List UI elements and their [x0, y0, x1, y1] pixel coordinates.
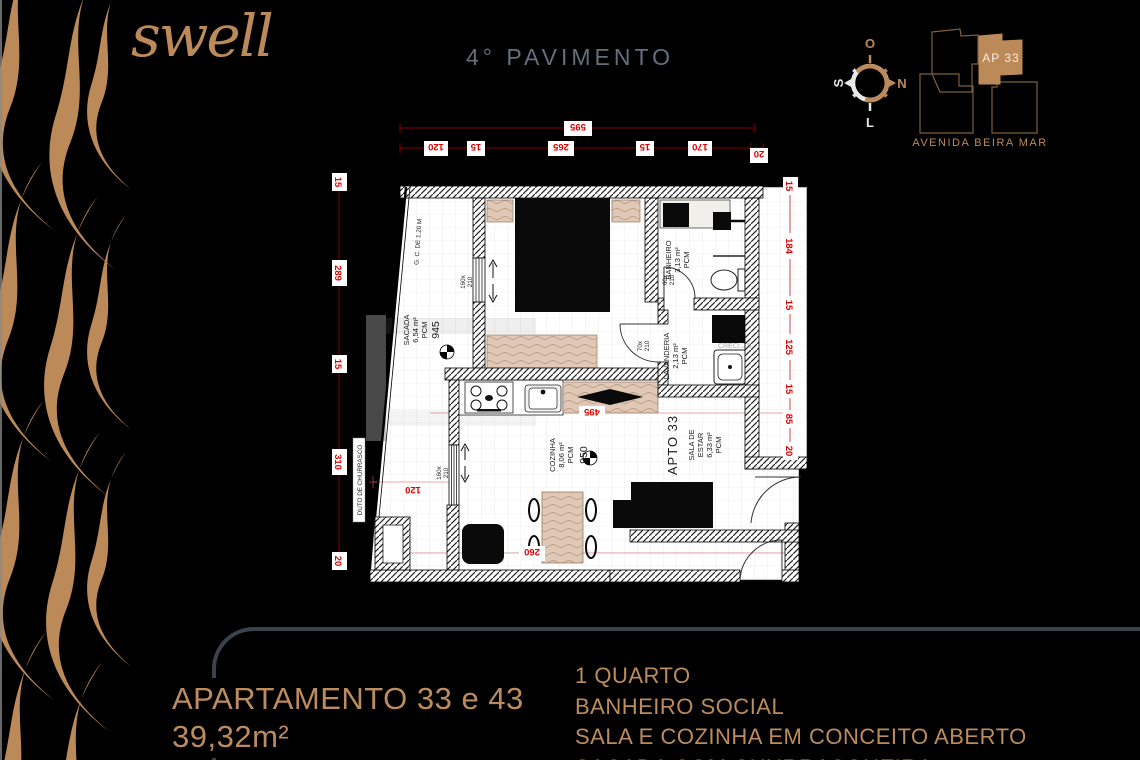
apartment-area: 39,32m²	[172, 718, 524, 756]
dim-label: 15	[636, 141, 654, 156]
svg-text:15: 15	[470, 141, 481, 152]
dim-label: 125	[783, 334, 798, 360]
svg-text:120: 120	[405, 484, 421, 495]
dim-label: 170	[688, 141, 712, 156]
dim-label: 20	[783, 442, 798, 460]
compass-east-label: L	[866, 115, 874, 130]
feature-item: 1 QUARTO	[575, 661, 1027, 692]
svg-text:2,13 m²: 2,13 m²	[671, 343, 680, 369]
left-edge-line	[0, 0, 2, 760]
svg-text:289: 289	[332, 265, 343, 281]
svg-text:DUTO DE CHURRASCO: DUTO DE CHURRASCO	[357, 445, 364, 516]
compass-rose-icon: O N S L	[833, 30, 907, 130]
svg-text:85: 85	[783, 414, 794, 425]
dim-label: 120	[401, 484, 425, 499]
dim-label: 260	[519, 546, 545, 561]
opening-label: 160x	[436, 465, 443, 480]
room-cozinha: COZINHA	[548, 438, 557, 472]
room-banheiro: BANHEIRO	[664, 240, 673, 279]
wardrobe	[487, 335, 597, 368]
compass-south-label: S	[833, 78, 846, 87]
compass-west-label: O	[865, 36, 875, 51]
unit-number-label: APTO 33	[665, 415, 680, 475]
dim-label: 15	[467, 141, 485, 156]
dim-label: 15	[783, 296, 798, 314]
bedroom-window	[473, 258, 485, 302]
nightstand-right	[612, 200, 640, 222]
svg-text:15: 15	[783, 384, 794, 395]
opening-label: 60x	[662, 274, 669, 285]
duct-shaft	[383, 525, 403, 563]
svg-text:210: 210	[644, 340, 651, 351]
dim-label: 120	[424, 141, 448, 156]
svg-text:6,33 m²: 6,33 m²	[705, 432, 714, 458]
svg-text:170: 170	[692, 141, 708, 152]
svg-text:210: 210	[467, 276, 474, 287]
dim-label: 20	[750, 148, 768, 163]
stove-icon	[465, 382, 513, 413]
svg-text:PCM: PCM	[714, 437, 723, 454]
dim-label: 85	[783, 410, 798, 428]
nightstand-left	[487, 200, 513, 222]
room-lavanderia: LAVANDERIA	[662, 333, 671, 379]
svg-text:184: 184	[783, 238, 794, 255]
svg-text:3,13 m²: 3,13 m²	[673, 247, 682, 273]
dim-label: 495	[579, 406, 605, 421]
svg-text:20: 20	[754, 148, 765, 159]
svg-text:15: 15	[332, 177, 343, 188]
poster: swell 4° PAVIMENTO O N S L AP 33 AVENIDA…	[0, 0, 1140, 760]
dim-label: 289	[332, 260, 347, 286]
svg-text:ESTAR: ESTAR	[696, 432, 705, 457]
svg-text:15: 15	[332, 359, 343, 370]
svg-text:15: 15	[639, 141, 650, 152]
svg-text:8,06 m²: 8,06 m²	[557, 442, 566, 468]
sink-icon	[525, 385, 561, 412]
svg-text:15: 15	[783, 181, 794, 192]
svg-text:125: 125	[783, 339, 794, 356]
svg-text:210: 210	[443, 467, 450, 478]
dim-label: 595	[564, 121, 592, 136]
location-keyplan: AP 33	[915, 12, 1055, 137]
svg-text:265: 265	[552, 141, 569, 152]
compass-north-label: N	[897, 76, 906, 91]
svg-text:120: 120	[428, 141, 444, 152]
street-label: AVENIDA BEIRA MAR	[900, 137, 1060, 149]
duct-note: DUTO DE CHURRASCO	[353, 438, 365, 522]
apartment-summary: APARTAMENTO 33 e 43 39,32m²	[170, 678, 538, 758]
dim-label: 15	[783, 177, 798, 195]
feature-item: BANHEIRO SOCIAL	[575, 692, 1027, 723]
feature-item: SACADA COM CHURRASQUEIRA	[575, 753, 1027, 760]
creci-watermark: CRECI J 8	[718, 343, 751, 350]
svg-text:PCM: PCM	[682, 252, 691, 269]
svg-text:210: 210	[669, 274, 676, 285]
dim-label: 15	[332, 173, 347, 191]
svg-text:495: 495	[583, 406, 600, 417]
opening-label: 160x	[460, 274, 467, 289]
dining-table	[542, 492, 583, 563]
dim-label: 310	[332, 449, 347, 475]
dim-label: 265	[548, 141, 574, 156]
dim-label: 184	[783, 233, 798, 259]
svg-text:20: 20	[332, 556, 343, 567]
section-marker	[440, 345, 454, 359]
svg-text:15: 15	[783, 300, 794, 311]
svg-text:6,54 m²: 6,54 m²	[411, 317, 420, 343]
dim-label: 20	[332, 552, 347, 570]
svg-text:310: 310	[332, 454, 343, 470]
apartment-title: APARTAMENTO 33 e 43	[172, 680, 524, 718]
svg-text:PCM: PCM	[420, 322, 429, 339]
svg-text:20: 20	[783, 446, 794, 457]
unit-label: AP 33	[982, 51, 1019, 65]
churrasqueira-counter	[563, 382, 658, 413]
dim-label: 15	[783, 380, 798, 398]
wave-decoration	[0, 0, 150, 760]
svg-text:PCM: PCM	[680, 348, 689, 365]
svg-text:595: 595	[569, 121, 586, 132]
floor-plan: SACADA 6,54 m² PCM 945 BANHEIRO 3,13 m² …	[325, 110, 815, 615]
room-sacada: SACADA	[402, 315, 411, 346]
svg-text:945: 945	[430, 321, 442, 339]
svg-text:PCM: PCM	[566, 447, 575, 464]
feature-item: SALA E COZINHA EM CONCEITO ABERTO	[575, 722, 1027, 753]
grill	[462, 524, 504, 564]
room-sala: SALA DE	[687, 429, 696, 460]
feature-list: 1 QUARTO BANHEIRO SOCIAL SALA E COZINHA …	[575, 661, 1027, 760]
opening-label: 70x	[637, 340, 644, 351]
bed	[515, 198, 610, 312]
dim-label: 15	[332, 355, 347, 373]
svg-text:260: 260	[524, 546, 540, 557]
svg-text:950: 950	[578, 446, 590, 464]
kitchen-window	[449, 445, 459, 505]
